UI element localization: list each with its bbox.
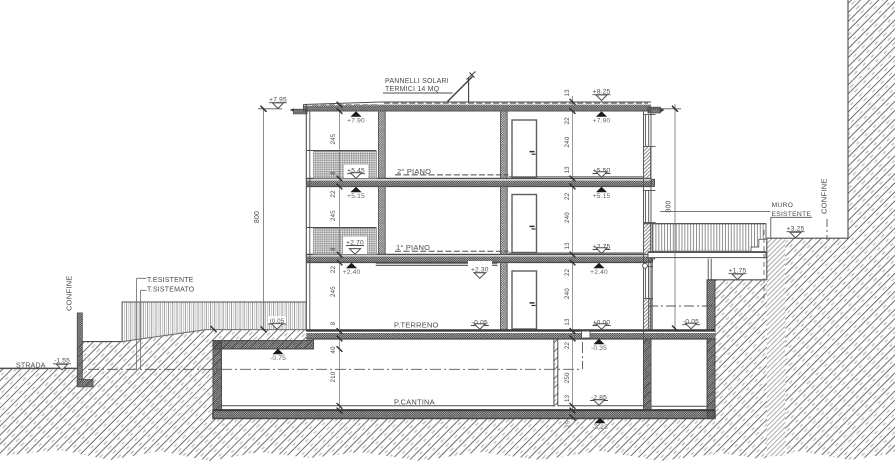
svg-text:-0.75: -0.75 bbox=[270, 355, 286, 362]
svg-text:STRADA: STRADA bbox=[16, 362, 46, 369]
svg-text:T.SISTEMATO: T.SISTEMATO bbox=[147, 286, 195, 293]
svg-text:8: 8 bbox=[330, 171, 337, 175]
svg-text:250: 250 bbox=[564, 372, 571, 383]
svg-text:8: 8 bbox=[330, 247, 337, 251]
svg-text:245: 245 bbox=[330, 210, 337, 221]
svg-text:-3.23: -3.23 bbox=[592, 424, 608, 431]
svg-text:800: 800 bbox=[665, 200, 672, 212]
svg-text:13: 13 bbox=[564, 89, 571, 97]
svg-text:22: 22 bbox=[564, 117, 571, 125]
svg-text:13: 13 bbox=[564, 166, 571, 174]
svg-text:PANNELLI SOLARI: PANNELLI SOLARI bbox=[385, 78, 449, 85]
svg-text:13: 13 bbox=[564, 242, 571, 250]
svg-text:CONFINE: CONFINE bbox=[65, 275, 74, 311]
svg-text:22: 22 bbox=[330, 190, 337, 198]
svg-text:CONFINE: CONFINE bbox=[820, 178, 829, 214]
svg-text:13: 13 bbox=[564, 394, 571, 402]
svg-text:25: 25 bbox=[566, 421, 572, 428]
svg-text:22: 22 bbox=[330, 266, 337, 274]
svg-text:245: 245 bbox=[330, 286, 337, 297]
svg-text:+2.40: +2.40 bbox=[590, 269, 608, 276]
svg-text:ESISTENTE: ESISTENTE bbox=[772, 211, 812, 218]
svg-text:+2.40: +2.40 bbox=[343, 269, 361, 276]
svg-text:2° PIANO: 2° PIANO bbox=[397, 167, 431, 176]
svg-text:22: 22 bbox=[564, 342, 571, 350]
svg-text:245: 245 bbox=[330, 133, 337, 144]
svg-text:8: 8 bbox=[330, 321, 337, 325]
svg-text:TERMICI 14 MQ: TERMICI 14 MQ bbox=[385, 86, 440, 93]
svg-text:+7.90: +7.90 bbox=[347, 118, 365, 125]
svg-text:+5.15: +5.15 bbox=[347, 193, 365, 200]
svg-text:+7.90: +7.90 bbox=[593, 118, 611, 125]
svg-text:22: 22 bbox=[564, 268, 571, 276]
svg-text:-0.35: -0.35 bbox=[591, 345, 607, 352]
svg-text:P.CANTINA: P.CANTINA bbox=[394, 398, 435, 407]
svg-text:MURO: MURO bbox=[772, 202, 794, 209]
svg-text:T.ESISTENTE: T.ESISTENTE bbox=[147, 277, 194, 284]
svg-text:13: 13 bbox=[564, 318, 571, 326]
svg-text:1° PIANO: 1° PIANO bbox=[396, 243, 430, 252]
svg-text:+5.15: +5.15 bbox=[593, 193, 611, 200]
svg-text:800: 800 bbox=[254, 211, 261, 223]
svg-text:40: 40 bbox=[330, 346, 337, 354]
svg-text:240: 240 bbox=[564, 136, 571, 147]
svg-text:240: 240 bbox=[564, 288, 571, 299]
svg-text:210: 210 bbox=[330, 371, 337, 382]
svg-text:240: 240 bbox=[564, 212, 571, 223]
svg-text:P.TERRENO: P.TERRENO bbox=[394, 321, 439, 330]
svg-text:22: 22 bbox=[564, 192, 571, 200]
